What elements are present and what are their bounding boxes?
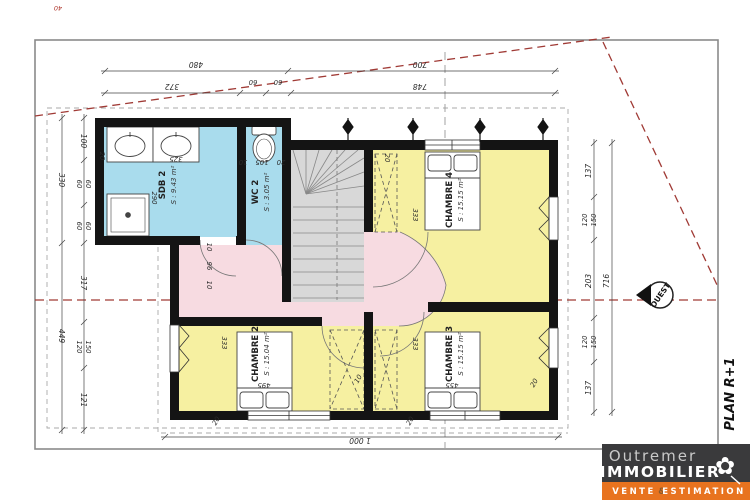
area-wc2: S : 3.05 m² — [263, 172, 271, 211]
dim-10b: 10 — [205, 243, 213, 252]
hallway-left-floor — [179, 245, 291, 317]
compass: OUEST — [636, 280, 673, 309]
dim-60f: 60 — [84, 222, 92, 231]
floorplan-drawing: 40 — [0, 0, 750, 500]
dim-60d: 60 — [84, 180, 92, 189]
dim-120a: 120 — [75, 341, 83, 354]
dim-60a: 60 — [249, 78, 258, 86]
dim-60b: 60 — [274, 78, 283, 86]
dim-60c: 60 — [75, 180, 83, 189]
label-wc2: WC 2 — [251, 180, 261, 205]
label-sdb2: SDB 2 — [158, 171, 168, 200]
area-chambre2: S : 15.04 m² — [263, 332, 271, 375]
page-title: PLAN R+1 — [723, 357, 738, 430]
logo-name-line2: IMMOBILIER — [600, 463, 721, 481]
dim-716: 716 — [602, 274, 611, 289]
dim-317: 317 — [79, 276, 88, 291]
dim-150a: 150 — [84, 341, 92, 354]
dim-1000: 1 000 — [349, 436, 371, 445]
dim-20c: 20 — [383, 154, 391, 163]
dim-333a: 333 — [411, 209, 419, 222]
dim-121: 121 — [79, 393, 88, 407]
dim-60e: 60 — [75, 222, 83, 231]
dim-137b: 137 — [584, 381, 593, 396]
area-chambre4: S : 15.15 m² — [457, 178, 465, 221]
agency-logo: Outremer IMMOBILIER ✿ VENTE & ESTIMATION — [600, 444, 750, 500]
floorplan-page: 40 — [0, 0, 750, 500]
staircase-floor — [291, 150, 364, 302]
dim-150b: 150 — [590, 214, 598, 227]
dim-10a: 10 — [239, 158, 248, 166]
dim-700: 700 — [413, 60, 428, 69]
dim-333b: 333 — [220, 337, 228, 350]
dim-137a: 137 — [584, 164, 593, 179]
dim-330: 330 — [57, 173, 66, 188]
dim-325: 325 — [170, 155, 183, 163]
dim-105: 105 — [256, 158, 269, 166]
label-chambre4: CHAMBRE 4 — [445, 172, 455, 228]
dim-449: 449 — [57, 329, 66, 344]
area-sdb2: S : 9.43 m² — [170, 165, 178, 204]
dim-20b: 20 — [277, 158, 286, 166]
dim-290: 290 — [150, 192, 158, 205]
dim-150c: 150 — [590, 336, 598, 349]
corner-mark-label: 40 — [54, 4, 62, 12]
dim-748: 748 — [413, 82, 428, 91]
label-chambre3: CHAMBRE 3 — [445, 326, 455, 382]
logo-tag-vente: VENTE — [612, 487, 656, 497]
dim-10c: 10 — [205, 281, 213, 290]
dim-203: 203 — [584, 274, 593, 289]
dim-20a: 20 — [98, 152, 106, 161]
dim-120c: 120 — [581, 336, 589, 349]
dim-333c: 333 — [411, 338, 419, 351]
area-chambre3: S : 15.15 m² — [457, 332, 465, 375]
dim-120b: 120 — [581, 214, 589, 227]
survey-markers — [343, 118, 548, 142]
dim-100: 100 — [79, 134, 88, 149]
label-chambre2: CHAMBRE 2 — [251, 326, 261, 382]
dim-480: 480 — [189, 60, 204, 69]
dim-96: 96 — [205, 262, 213, 271]
hibiscus-flower-icon: ✿ — [715, 452, 735, 480]
logo-tag-estimation: ESTIMATION — [662, 487, 746, 497]
dim-372: 372 — [165, 82, 180, 91]
